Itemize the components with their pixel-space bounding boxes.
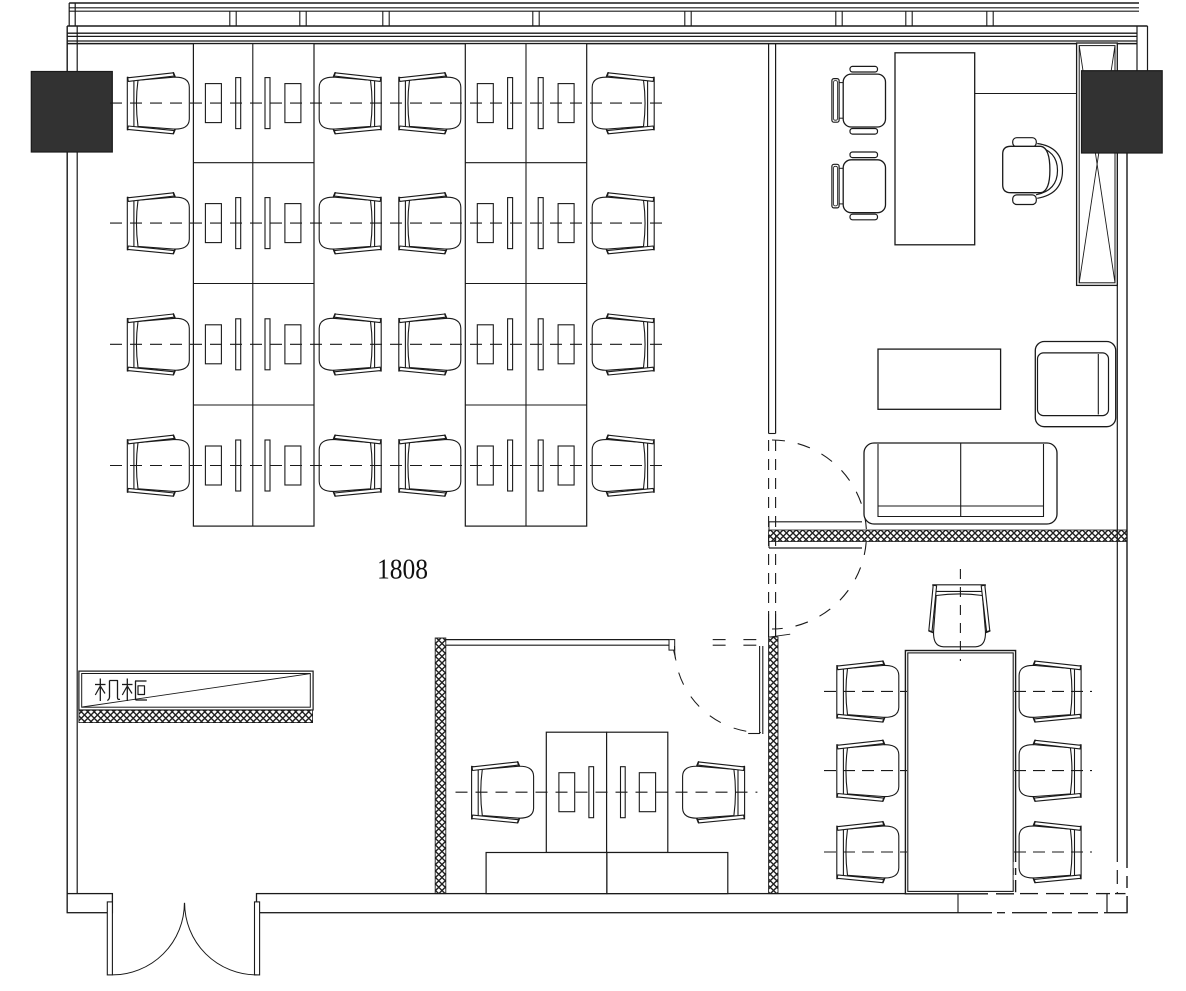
svg-text:1808: 1808 bbox=[377, 555, 428, 586]
